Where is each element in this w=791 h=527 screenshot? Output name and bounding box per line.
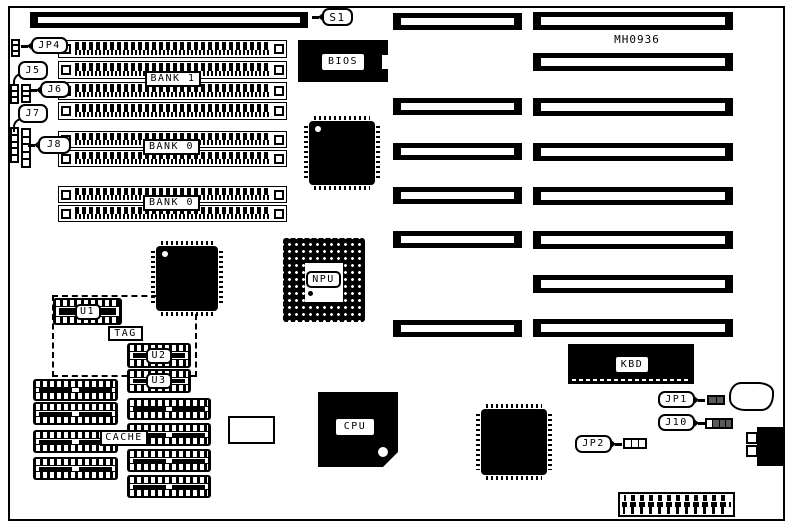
simm-latch bbox=[274, 86, 284, 96]
bank0-lower-label-box: BANK 0 bbox=[143, 195, 200, 211]
tag-label-box: TAG bbox=[108, 326, 143, 341]
bios-label: BIOS bbox=[328, 57, 358, 67]
cache-socket bbox=[127, 398, 211, 420]
jumper-jp2 bbox=[623, 438, 647, 449]
bank1-label-box: BANK 1 bbox=[145, 71, 201, 87]
bank0-upper-label: BANK 0 bbox=[149, 142, 194, 152]
dip-socket-u2: U2 bbox=[127, 343, 191, 368]
callout-jp2: JP2 bbox=[575, 435, 612, 453]
simm-latch bbox=[61, 106, 71, 116]
isa-slot bbox=[533, 12, 733, 30]
u1-label: U1 bbox=[80, 307, 95, 317]
keyboard-connector-pin bbox=[746, 432, 758, 444]
jumper-j5 bbox=[10, 84, 19, 104]
callout-jp2-label: JP2 bbox=[582, 439, 605, 449]
cpu-chip: CPU bbox=[318, 392, 398, 467]
callout-j8-label: J8 bbox=[47, 140, 62, 150]
chipset-qfp-3 bbox=[481, 409, 547, 475]
isa-slot bbox=[393, 231, 522, 248]
bank0-lower-label: BANK 0 bbox=[149, 198, 194, 208]
cache-socket bbox=[33, 379, 118, 401]
pin1-dot bbox=[315, 126, 321, 132]
u3-label: U3 bbox=[151, 376, 166, 386]
simm-socket bbox=[58, 40, 287, 58]
bank0-upper-label-box: BANK 0 bbox=[143, 139, 200, 155]
callout-j6: J6 bbox=[40, 81, 70, 98]
jumper-j10 bbox=[705, 418, 733, 429]
cache-socket bbox=[127, 449, 211, 472]
simm-latch bbox=[274, 209, 284, 219]
isa-slot bbox=[393, 320, 522, 337]
simm-latch bbox=[274, 65, 284, 75]
callout-j7-label: J7 bbox=[25, 109, 40, 119]
crystal-outline bbox=[729, 382, 774, 411]
isa-slot bbox=[533, 187, 733, 205]
tag-label: TAG bbox=[114, 329, 137, 339]
callout-j5-label: J5 bbox=[25, 66, 40, 76]
isa-slot bbox=[533, 98, 733, 116]
cache-socket bbox=[33, 402, 118, 425]
callout-j6-label: J6 bbox=[47, 85, 62, 95]
pin1-dot bbox=[378, 447, 388, 457]
u2-label: U2 bbox=[151, 351, 166, 361]
motherboard-diagram: S1 BANK 1 BANK 0 BANK 0 JP4 J5 J6 J7 J8 bbox=[0, 0, 791, 527]
kbd-chip: KBD bbox=[568, 344, 694, 384]
callout-s1: S1 bbox=[322, 8, 353, 26]
callout-jp1: JP1 bbox=[658, 391, 695, 408]
jumper-jp4 bbox=[11, 39, 20, 57]
simm-latch bbox=[274, 106, 284, 116]
isa-slot bbox=[533, 143, 733, 161]
empty-socket bbox=[228, 416, 275, 444]
simm-latch bbox=[274, 44, 284, 54]
cache-socket bbox=[33, 457, 118, 480]
callout-jp1-label: JP1 bbox=[665, 395, 688, 405]
cpu-label: CPU bbox=[344, 422, 367, 432]
callout-jp4-label: JP4 bbox=[38, 41, 61, 51]
simm-latch bbox=[61, 154, 71, 164]
isa-slot bbox=[533, 53, 733, 71]
simm-socket bbox=[58, 102, 287, 120]
bank1-label: BANK 1 bbox=[150, 74, 195, 84]
isa-slot bbox=[393, 143, 522, 160]
simm-latch bbox=[61, 209, 71, 219]
callout-j10-label: J10 bbox=[665, 418, 688, 428]
jumper-j6 bbox=[21, 84, 31, 103]
cache-label-box: CACHE bbox=[100, 430, 148, 446]
kbd-label-box: KBD bbox=[616, 357, 648, 372]
jumper-jp1 bbox=[707, 395, 725, 405]
memory-slot-s1 bbox=[30, 12, 308, 28]
callout-s1-label: S1 bbox=[329, 12, 345, 23]
npu-label: NPU bbox=[312, 275, 335, 285]
u2-label-box: U2 bbox=[146, 348, 172, 364]
chipset-qfp-1 bbox=[309, 121, 375, 185]
callout-j10: J10 bbox=[658, 414, 695, 431]
isa-slot bbox=[533, 231, 733, 249]
bios-chip-notch bbox=[382, 55, 388, 69]
callout-jp4: JP4 bbox=[31, 37, 68, 54]
simm-latch bbox=[61, 190, 71, 200]
cpu-label-box: CPU bbox=[336, 419, 374, 435]
callout-j7: J7 bbox=[18, 104, 48, 123]
isa-slot bbox=[393, 98, 522, 115]
simm-latch bbox=[61, 65, 71, 75]
simm-latch bbox=[274, 190, 284, 200]
jumper-j7 bbox=[10, 127, 19, 163]
dip-socket-u1: U1 bbox=[53, 298, 122, 325]
pin1-dot bbox=[162, 251, 168, 257]
isa-slot bbox=[393, 13, 522, 30]
pin1-dot bbox=[308, 291, 313, 296]
dip-socket-u3: U3 bbox=[127, 369, 191, 393]
bios-label-box: BIOS bbox=[322, 54, 364, 70]
cache-socket bbox=[127, 475, 211, 498]
isa-slot bbox=[533, 275, 733, 293]
isa-slot bbox=[393, 187, 522, 204]
callout-j5: J5 bbox=[18, 61, 48, 80]
cache-label: CACHE bbox=[105, 433, 143, 443]
npu-socket: NPU bbox=[283, 238, 365, 322]
keyboard-connector bbox=[757, 427, 785, 466]
simm-latch bbox=[274, 135, 284, 145]
u1-label-box: U1 bbox=[75, 304, 101, 320]
power-connector bbox=[618, 492, 735, 517]
isa-slot bbox=[533, 319, 733, 337]
npu-label-box: NPU bbox=[306, 271, 341, 288]
simm-latch bbox=[274, 154, 284, 164]
part-number: MH0936 bbox=[606, 33, 668, 46]
kbd-label: KBD bbox=[621, 360, 644, 370]
u3-label-box: U3 bbox=[146, 373, 172, 389]
keyboard-connector-pin bbox=[746, 445, 758, 457]
callout-j8: J8 bbox=[38, 136, 71, 154]
